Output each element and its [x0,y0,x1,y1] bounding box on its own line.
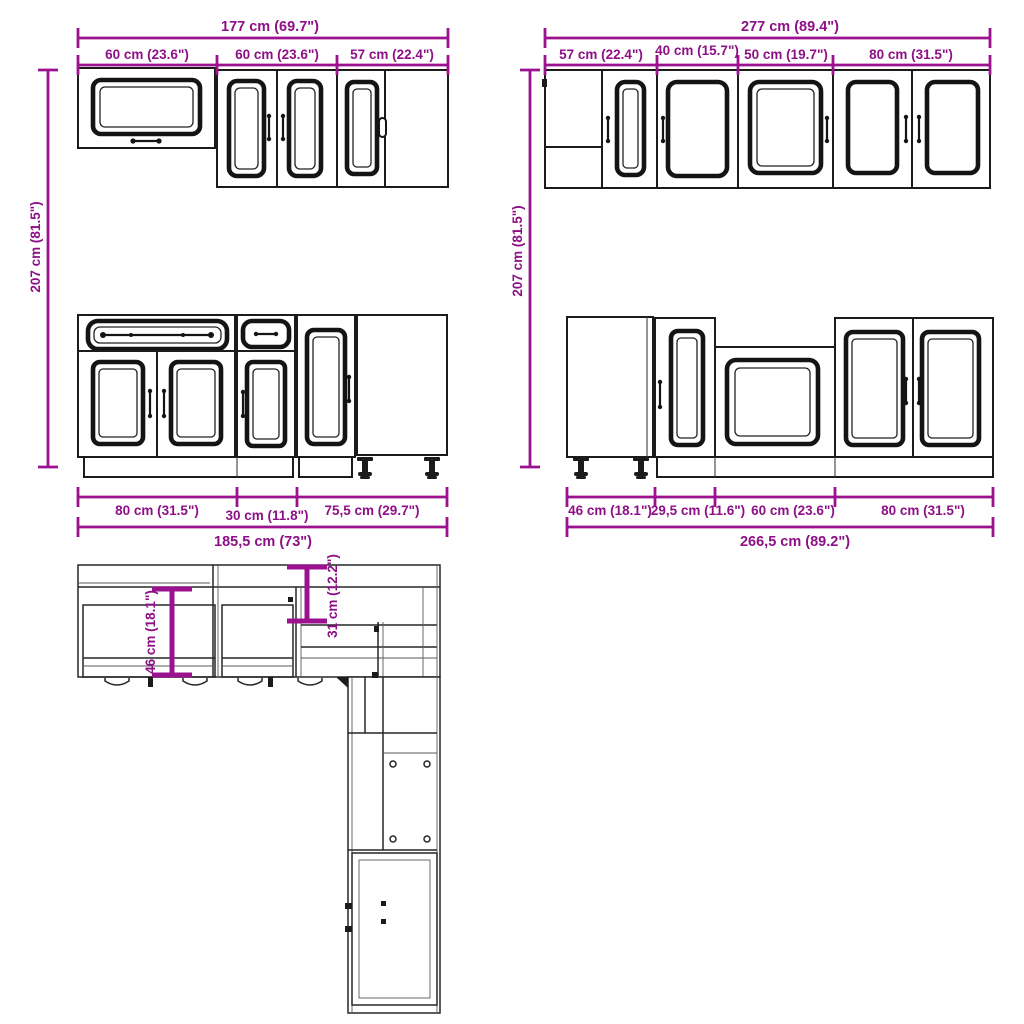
dim-label-height-left: 207 cm (81.5") [28,201,43,292]
handle-icon [379,118,386,137]
dim-label-base-right-seg3: 60 cm (23.6") [751,503,835,518]
base-end-unit [357,315,447,455]
dim-label-wall-right-seg2: 40 cm (15.7") [655,43,739,58]
kitchen-cabinet-dimension-diagram: 177 cm (69.7") 60 cm (23.6") 60 cm (23.6… [0,0,1024,1024]
dim-label-wall-left-seg1: 60 cm (23.6") [105,47,189,62]
foot-icon [298,678,322,685]
dim-label-base-right-total: 266,5 cm (89.2") [740,534,850,550]
leg-icon [633,457,649,479]
dim-label-base-right-seg1: 46 cm (18.1") [568,503,652,518]
base-cabinets-left-elevation [78,315,447,479]
dim-label-wall-left-seg2: 60 cm (23.6") [235,47,319,62]
dims-base-left: 80 cm (31.5") 30 cm (11.8") 75,5 cm (29.… [78,487,447,550]
dim-label-plan-base-depth: 46 cm (18.1") [143,590,158,674]
dim-label-base-right-seg2: 29,5 cm (11.6") [651,503,745,518]
plinth [84,457,293,477]
dim-label-base-left-seg3: 75,5 cm (29.7") [325,503,420,518]
base-cabinets-right-elevation [567,317,993,479]
dim-label-base-left-seg2: 30 cm (11.8") [226,508,309,523]
dim-label-base-left-seg1: 80 cm (31.5") [115,503,199,518]
dim-label-wall-right-seg1: 57 cm (22.4") [559,47,643,62]
dim-label-wall-right-seg4: 80 cm (31.5") [869,47,953,62]
foot-icon [238,678,262,685]
diagram-canvas: 177 cm (69.7") 60 cm (23.6") 60 cm (23.6… [0,0,1024,1024]
dim-label-base-left-total: 185,5 cm (73") [214,534,312,550]
wall-cabinets-left-elevation [78,68,448,187]
dim-label-wall-right-seg3: 50 cm (19.7") [744,47,828,62]
dim-label-base-right-seg4: 80 cm (31.5") [881,503,965,518]
plan-run-outline [78,565,440,677]
leg-icon [573,457,589,479]
plan-view: 46 cm (18.1") 31 cm (12.2") [78,554,440,1013]
plinth [657,457,993,477]
dim-label-plan-wall-depth: 31 cm (12.2") [325,554,340,638]
foot-icon [105,678,129,685]
base-corner-unit [567,317,653,457]
wall-cabinets-right-elevation [542,70,990,188]
dims-base-right: 46 cm (18.1") 29,5 cm (11.6") 60 cm (23.… [567,487,993,550]
dim-label-wall-right-total: 277 cm (89.4") [741,19,839,35]
wall-end-panel [545,70,602,188]
plan-leg-outline [348,677,440,1013]
plinth [299,457,352,477]
corner-mark [336,677,348,688]
dim-label-wall-left-seg3: 57 cm (22.4") [350,47,434,62]
leg-icon [357,457,373,479]
dim-label-wall-left-total: 177 cm (69.7") [221,19,319,35]
leg-icon [424,457,440,479]
foot-icon [183,678,207,685]
dim-label-height-right: 207 cm (81.5") [510,205,525,296]
